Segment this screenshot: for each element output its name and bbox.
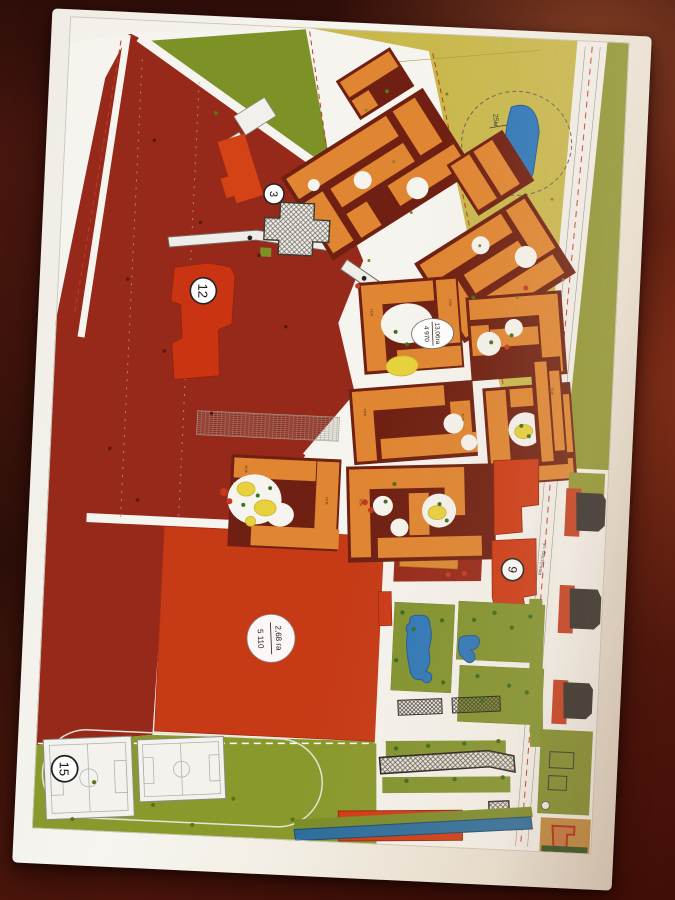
- existing-house-2: [568, 588, 602, 629]
- pond-dimension-label: 25м: [491, 114, 499, 127]
- existing-house-3: [562, 682, 594, 719]
- existing-house-1: [574, 493, 606, 532]
- site-plan-map: 25м: [32, 16, 630, 854]
- park-red-building: [378, 591, 392, 625]
- stadium-badge: 15: [57, 761, 72, 776]
- svg-text:ТСЖ: ТСЖ: [369, 309, 373, 318]
- svg-text:ТСЖ: ТСЖ: [358, 498, 362, 507]
- school-badge-label: 3: [267, 191, 279, 197]
- district-population-value: 4 970: [422, 326, 430, 343]
- svg-text:ТСЖ: ТСЖ: [363, 409, 367, 418]
- field-area-value: 2,68 га: [274, 625, 284, 651]
- residential-cluster-c2: [349, 380, 478, 465]
- residential-cluster-e: [217, 454, 342, 552]
- district-area-value: 13,06га: [433, 322, 441, 344]
- building-12-badge: 12: [195, 283, 210, 298]
- svg-text:ТСЖ: ТСЖ: [550, 387, 554, 396]
- svg-text:ТСЖ: ТСЖ: [324, 497, 328, 506]
- svg-text:ТСЖ: ТСЖ: [461, 413, 465, 422]
- residential-cluster-f: [346, 463, 496, 562]
- field-population-value: 5 110: [256, 629, 266, 649]
- svg-text:ТСЖ: ТСЖ: [244, 465, 248, 474]
- map-sheet: 25м: [12, 8, 652, 890]
- svg-text:ТСЖ: ТСЖ: [448, 298, 452, 307]
- photo-background: 25м: [0, 0, 675, 900]
